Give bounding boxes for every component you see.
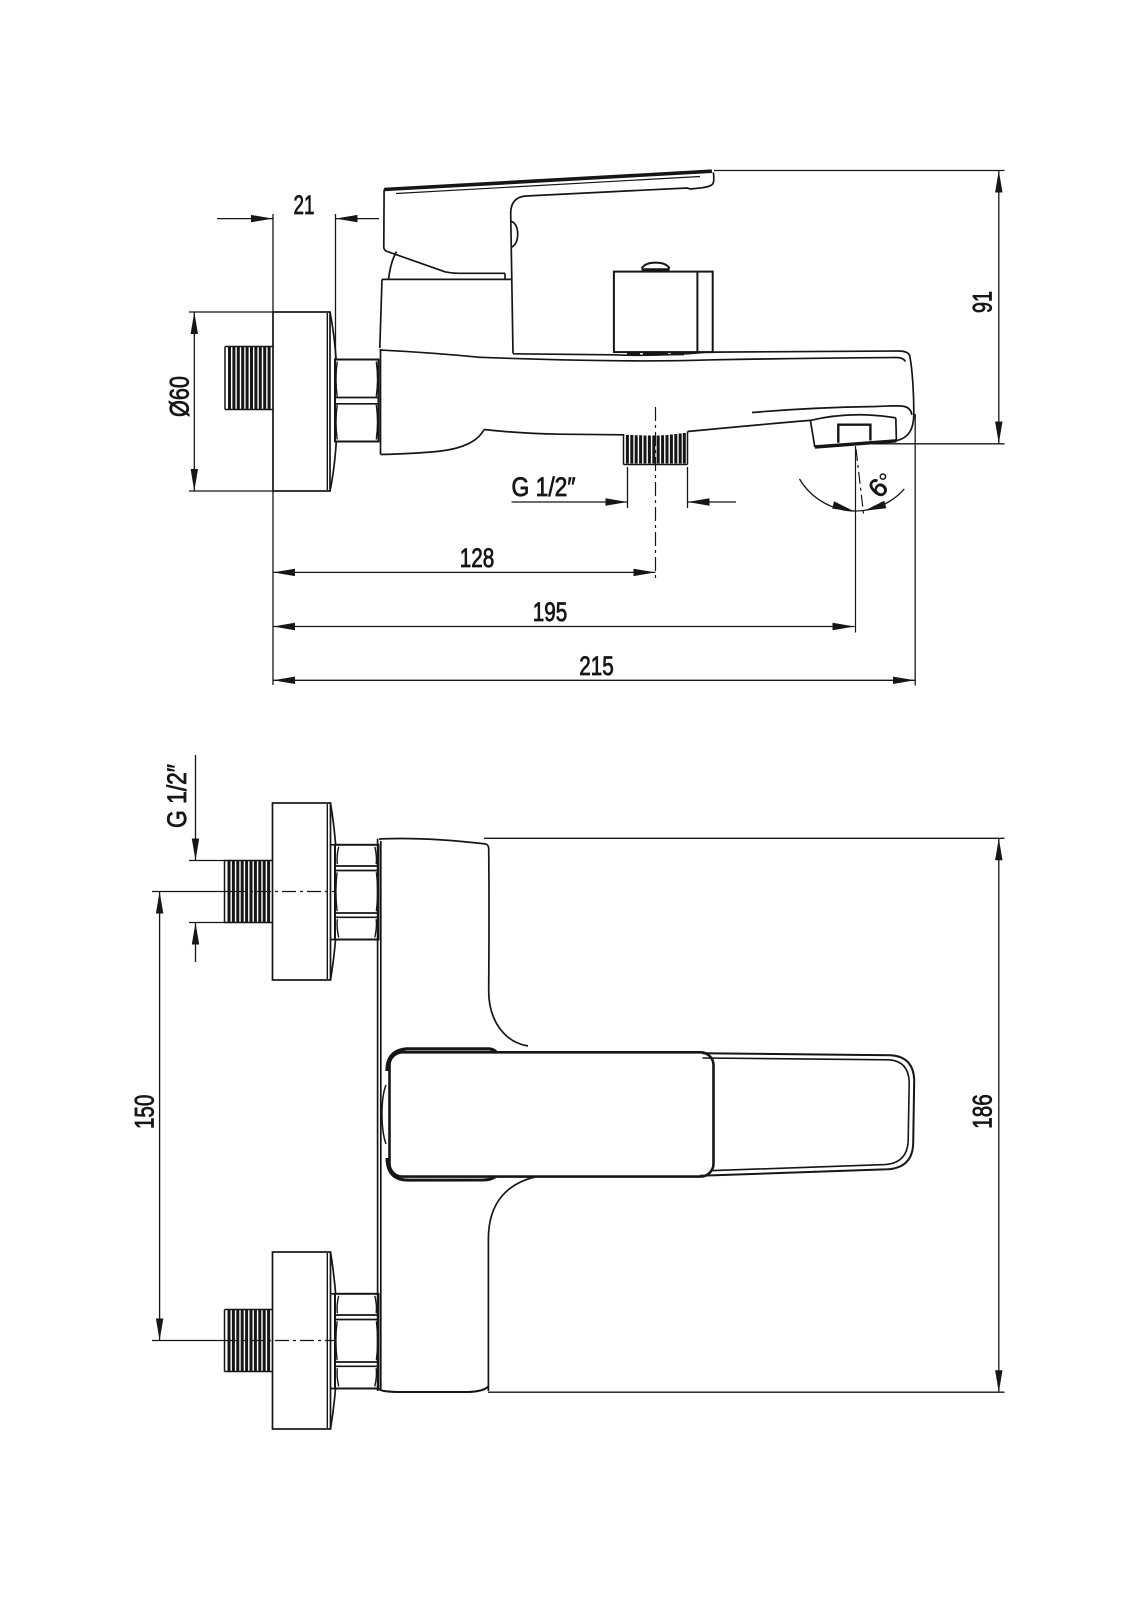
svg-text:128: 128 [460,543,495,573]
svg-text:Ø60: Ø60 [165,376,195,417]
svg-text:186: 186 [968,1094,998,1129]
svg-text:150: 150 [130,1095,160,1130]
svg-text:91: 91 [968,291,998,313]
svg-text:21: 21 [294,190,315,220]
svg-text:G 1/2″: G 1/2″ [162,764,192,828]
svg-text:195: 195 [533,597,568,627]
svg-text:G 1/2″: G 1/2″ [512,472,576,502]
svg-text:215: 215 [579,651,614,681]
